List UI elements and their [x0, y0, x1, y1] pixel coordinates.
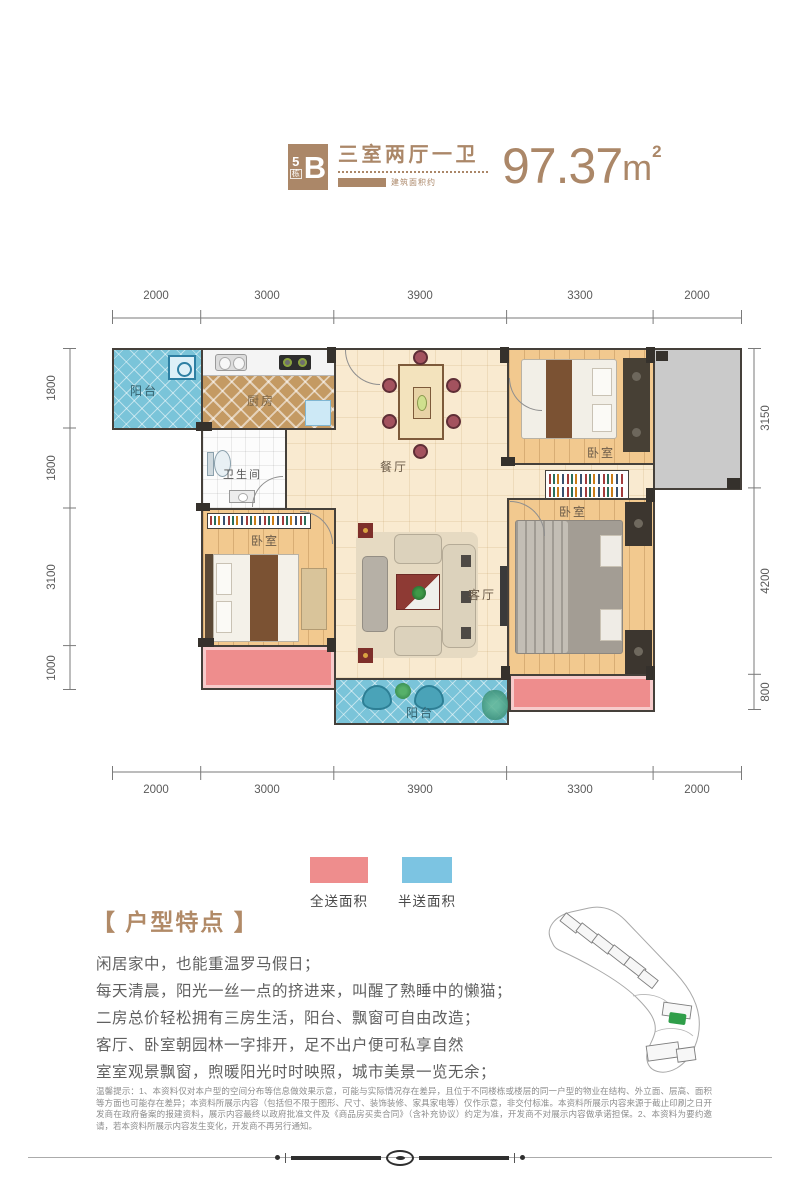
legend-swatch-full-gift: [310, 857, 368, 883]
wall-column: [198, 638, 214, 647]
wardrobe: [625, 502, 652, 546]
legend-swatch-half-gift: [402, 857, 452, 883]
pillow: [600, 535, 622, 567]
sofa-chaise: [394, 626, 442, 656]
toilet-icon: [207, 452, 214, 476]
pillow: [216, 601, 232, 633]
room-label-bedroom-top-right: 卧室: [587, 444, 615, 461]
floor-plan-poster: { "header": { "badge": { "building_numbe…: [0, 0, 800, 1190]
speaker-icon: [358, 523, 373, 538]
wall-column: [327, 347, 336, 363]
sofa: [362, 556, 388, 632]
badge-building-suffix: 栋: [290, 169, 302, 179]
room-balcony-bottom: 阳台: [334, 678, 509, 725]
layout-type-label: 三室两厅一卫: [338, 144, 492, 166]
dim-right-2: 800: [760, 674, 772, 710]
chair-icon: [446, 414, 461, 429]
chair-icon: [446, 378, 461, 393]
area-figure: 97.37 m 2: [502, 138, 662, 194]
washbasin-icon: [229, 490, 255, 503]
washing-machine-icon: [168, 355, 196, 380]
dim-top-4: 2000: [667, 290, 727, 302]
dining-table: [398, 364, 444, 440]
bench: [301, 568, 327, 630]
chair-icon: [413, 444, 428, 459]
building-badge: 5 栋 B: [288, 144, 328, 190]
area-bar: [338, 178, 386, 187]
sofa-chaise: [394, 534, 442, 564]
dim-top-2: 3900: [390, 290, 450, 302]
disclaimer-text: 温馨提示：1、本资料仅对本户型的空间分布等信息做效果示意，可能与实际情况存在差异…: [96, 1086, 712, 1132]
pillow: [216, 563, 232, 595]
wall-column: [327, 638, 336, 652]
room-kitchen: 厨房: [201, 348, 336, 430]
dim-bottom-4: 2000: [667, 784, 727, 796]
dim-bottom-2: 3900: [390, 784, 450, 796]
header: 5 栋 B 三室两厅一卫 建筑面积约 97.37 m 2: [288, 144, 662, 194]
bed: [515, 520, 623, 654]
bed-headboard: [205, 554, 213, 642]
wall-column: [646, 347, 655, 363]
plant-icon: [412, 586, 426, 600]
room-label-kitchen: 厨房: [247, 392, 275, 409]
room-label-living: 客厅: [468, 586, 496, 603]
pillow: [592, 404, 612, 432]
divider-ornament: [275, 1148, 525, 1167]
legend-label-half-gift: 半送面积: [372, 890, 482, 910]
feature-line: 室室观景飘窗，煦暖阳光时时映照，城市美景一览无余；: [96, 1060, 496, 1082]
wall-column: [501, 457, 515, 466]
badge-building-number: 5: [292, 155, 299, 168]
bookshelf: [545, 470, 629, 500]
plant-icon: [482, 690, 508, 720]
lounge-chair: [362, 685, 392, 710]
speaker-icon: [358, 648, 373, 663]
dim-right-0: 3150: [760, 400, 772, 436]
dim-top-0: 2000: [126, 290, 186, 302]
sink-icon: [215, 354, 247, 371]
room-label-dining: 餐厅: [380, 458, 408, 475]
header-middle: 三室两厅一卫 建筑面积约: [338, 144, 492, 188]
dim-left-2: 3100: [46, 559, 58, 595]
badge-unit-letter: B: [304, 152, 326, 183]
bookshelf: [207, 513, 311, 529]
area-exponent: 2: [652, 142, 661, 162]
plant-icon: [395, 683, 411, 699]
room-label-balcony-bottom: 阳台: [406, 704, 434, 721]
wall-column: [196, 422, 212, 431]
dim-top-3: 3300: [550, 290, 610, 302]
feature-line: 每天清晨，阳光一丝一点的挤进来，叫醒了熟睡中的懒猫；: [96, 979, 512, 1001]
wall-column: [501, 666, 510, 680]
chair-icon: [382, 414, 397, 429]
site-map-highlight: [668, 1012, 686, 1025]
room-label-balcony-top: 阳台: [130, 382, 158, 399]
plan-body: 阳台 厨房 卫生间: [112, 348, 742, 725]
dim-bottom-0: 2000: [126, 784, 186, 796]
room-balcony-top: 阳台: [112, 348, 203, 430]
chair-icon: [413, 350, 428, 365]
dim-left-1: 1800: [46, 450, 58, 486]
wall-column: [646, 666, 655, 680]
feature-line: 二房总价轻松拥有三房生活，阳台、飘窗可自由改造；: [96, 1006, 480, 1028]
area-unit: m: [622, 148, 652, 188]
gray-area: [653, 348, 742, 490]
room-label-bedroom-right: 卧室: [559, 503, 587, 520]
pillow: [592, 368, 612, 396]
floor-plan: 2000 3000 3900 3300 2000 2000 3000 3900 …: [40, 280, 770, 810]
dim-bottom-1: 3000: [237, 784, 297, 796]
stove-icon: [279, 355, 311, 370]
wall-column: [500, 347, 509, 363]
dim-line-left: [60, 348, 76, 690]
coffee-table: [396, 574, 440, 610]
dotted-divider: [338, 171, 488, 173]
room-label-bedroom-left: 卧室: [251, 532, 279, 549]
dim-line-top: [112, 306, 742, 324]
dim-line-bottom: [112, 766, 742, 784]
dim-top-1: 3000: [237, 290, 297, 302]
wardrobe: [623, 358, 650, 452]
wall-column: [646, 488, 655, 502]
wall-column: [196, 503, 210, 511]
dim-left-0: 1800: [46, 370, 58, 406]
bottom-divider: [28, 1148, 772, 1168]
gift-area-left: [201, 645, 336, 690]
fridge-icon: [305, 400, 331, 426]
dim-right-1: 4200: [760, 563, 772, 599]
dim-bottom-3: 3300: [550, 784, 610, 796]
pillow: [600, 609, 622, 641]
room-label-bathroom: 卫生间: [223, 466, 262, 482]
bed: [213, 554, 299, 642]
feature-line: 闲居家中，也能重温罗马假日；: [96, 952, 320, 974]
area-value: 97.37: [502, 138, 622, 194]
dim-left-3: 1000: [46, 650, 58, 686]
tv-cabinet: [500, 566, 507, 626]
area-label: 建筑面积约: [391, 177, 436, 188]
feature-line: 客厅、卧室朝园林一字排开，足不出户便可私享自然: [96, 1033, 464, 1055]
features-title: 【 户型特点 】: [92, 903, 259, 937]
site-map: [537, 888, 722, 1080]
room-living: 客厅: [334, 510, 509, 678]
chair-icon: [382, 378, 397, 393]
gift-area-right: [509, 674, 655, 712]
